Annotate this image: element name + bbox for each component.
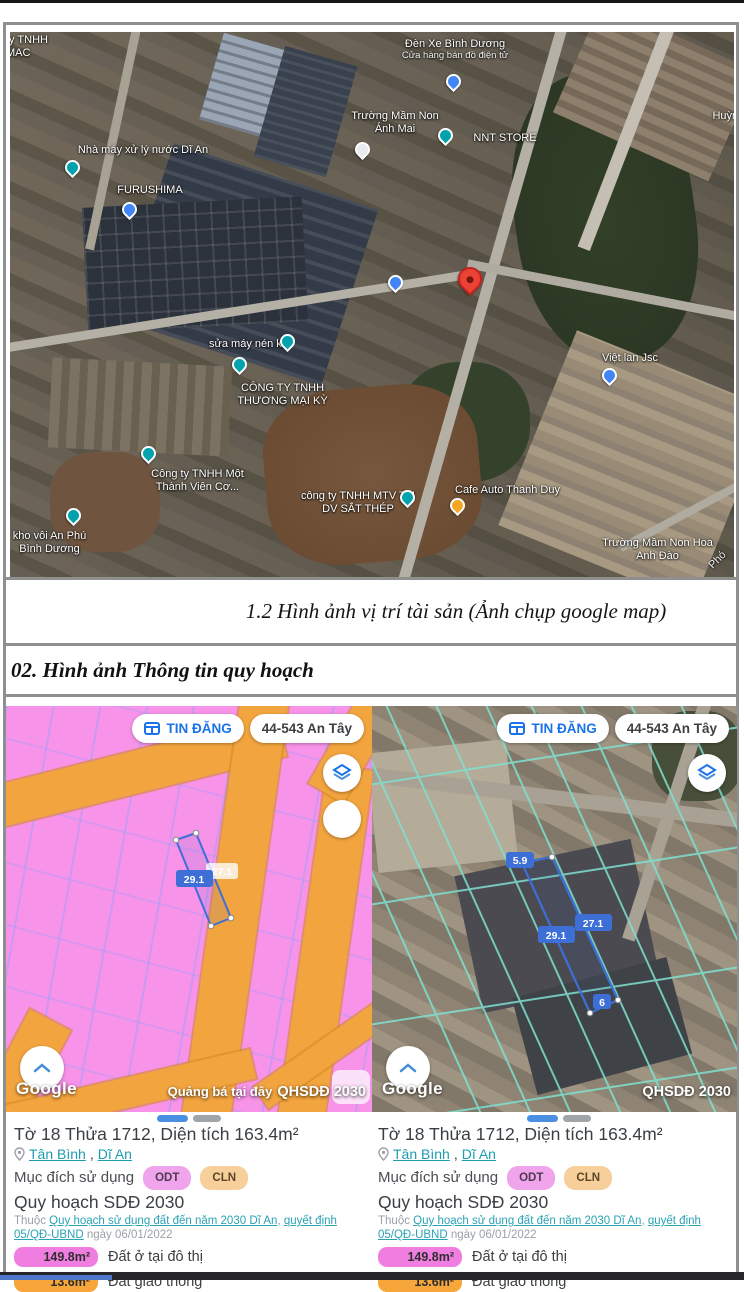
plan-prefix: Thuộc (378, 1215, 413, 1227)
address-label: 44-543 An Tây (627, 721, 717, 736)
map-label-den-xe-binh-duong: Đèn Xe Bình Dương Cửa hàng bán đồ điện t… (380, 38, 530, 62)
measurement-27: 27.1 (212, 866, 233, 878)
map-label-kho-voi-an-phu: kho vôi An Phú Bình Dương (10, 530, 97, 555)
parcel-title: Tờ 18 Thửa 1712, Diện tích 163.4m² (378, 1124, 734, 1144)
map-label-cong-ty-mot-thanh-vien: Công ty TNHH Một Thành Viên Cơ... (135, 468, 260, 493)
map-pin-plant-icon (62, 157, 83, 178)
chevron-up-icon (399, 1063, 417, 1073)
location-link-tan-binh[interactable]: Tân Bình (29, 1145, 86, 1163)
map-label-nnt-store: NNT STORE (460, 132, 550, 145)
layers-icon (332, 763, 352, 783)
parcel-outline-svg: 27.1 29.1 (6, 706, 372, 1112)
layers-icon (697, 763, 717, 783)
qhsdd-watermark: QHSDĐ 2030 (277, 1084, 366, 1100)
location-link-di-an[interactable]: Dĩ An (462, 1145, 496, 1163)
chevron-up-icon (33, 1063, 51, 1073)
location-pin-icon (14, 1147, 25, 1161)
map-texture-rooftops (48, 357, 232, 456)
listing-grid-icon (144, 722, 160, 735)
purpose-row: Mục đích sử dụng ODT CLN (378, 1166, 734, 1190)
planning-map-satellite[interactable]: 5.9 29.1 27.1 6 TIN ĐĂNG 44-543 An Tây (372, 706, 737, 1112)
parcel-vertex-dot (549, 854, 555, 860)
plan-detail: Thuộc Quy hoạch sử dụng đất đến năm 2030… (14, 1214, 370, 1242)
parcel-vertex-dot (587, 1010, 593, 1016)
tin-dang-button[interactable]: TIN ĐĂNG (132, 714, 243, 743)
figure-caption: 1.2 Hình ảnh vị trí tài sản (Ảnh chụp go… (246, 599, 667, 624)
map-label-cong-ty-thuong-mai-ky: CÔNG TY TNHH THƯƠNG MẠI KỲ (225, 382, 340, 407)
layers-button[interactable] (323, 754, 361, 792)
page-dot[interactable] (193, 1115, 221, 1122)
plan-date: ngày 06/01/2022 (448, 1229, 537, 1241)
map-label-viet-lan-jsc: Việt lan Jsc (585, 352, 675, 365)
area-label-residential: Đất ở tại đô thị (472, 1249, 567, 1265)
badge-odt: ODT (143, 1166, 191, 1190)
area-row-residential: 149.8m² Đất ở tại đô thị (378, 1247, 734, 1267)
planning-map-landuse[interactable]: 27.1 29.1 TIN ĐĂNG 44-543 An Tây Google (6, 706, 372, 1112)
measurement-6: 6 (599, 997, 605, 1009)
page-dot-active[interactable] (157, 1115, 188, 1122)
parcel-info-panel-left: Tờ 18 Thửa 1712, Diện tích 163.4m² Tân B… (14, 1124, 370, 1292)
page-top-edge (0, 0, 744, 3)
address-pill[interactable]: 44-543 An Tây (615, 714, 729, 743)
measurement-27-1: 27.1 (583, 918, 604, 930)
purpose-row: Mục đích sử dụng ODT CLN (14, 1166, 370, 1190)
tin-dang-label: TIN ĐĂNG (531, 721, 596, 736)
map-label-subtitle: Cửa hàng bán đồ điện tử (380, 51, 530, 62)
qhsdd-watermark: QHSDĐ 2030 (642, 1084, 731, 1100)
page-indicator-right[interactable] (527, 1115, 591, 1122)
tin-dang-label: TIN ĐĂNG (166, 721, 231, 736)
plan-date: ngày 06/01/2022 (84, 1229, 173, 1241)
location-pin-icon (378, 1147, 389, 1161)
location-separator: , (454, 1145, 458, 1163)
location-link-di-an[interactable]: Dĩ An (98, 1145, 132, 1163)
page-dot[interactable] (563, 1115, 591, 1122)
badge-cln: CLN (564, 1166, 612, 1190)
my-location-button[interactable] (323, 800, 361, 838)
badge-odt: ODT (507, 1166, 555, 1190)
map-pin-shop-icon (443, 71, 464, 92)
map-toolbar: TIN ĐĂNG 44-543 An Tây (132, 714, 364, 743)
purpose-label: Mục đích sử dụng (378, 1168, 498, 1188)
map-watermarks: QHSDĐ 2030 (642, 1084, 731, 1100)
map-label-ty-tnhh-mac: ty TNHH MAC (10, 34, 66, 59)
layers-button[interactable] (688, 754, 726, 792)
badge-cln: CLN (200, 1166, 248, 1190)
document-page: { "page": { "caption": "1.2 Hình ảnh vị … (0, 0, 744, 1280)
location-link-tan-binh[interactable]: Tân Bình (393, 1145, 450, 1163)
map-label-hoa-anh-dao: Trường Mầm Non Hoa Anh Đào (600, 537, 715, 562)
plan-title: Quy hoạch SDĐ 2030 (14, 1192, 370, 1213)
figure-caption-row: 1.2 Hình ảnh vị trí tài sản (Ảnh chụp go… (6, 580, 736, 643)
listing-grid-icon (509, 722, 525, 735)
address-pill[interactable]: 44-543 An Tây (250, 714, 364, 743)
area-badge-residential: 149.8m² (378, 1247, 462, 1267)
purpose-label: Mục đích sử dụng (14, 1168, 134, 1188)
section-title: 02. Hình ảnh Thông tin quy hoạch (6, 658, 314, 683)
map-label-furushima: FURUSHIMA (105, 184, 195, 197)
parcel-title: Tờ 18 Thửa 1712, Diện tích 163.4m² (14, 1124, 370, 1144)
tin-dang-button[interactable]: TIN ĐĂNG (497, 714, 608, 743)
parcel-vertex-dot (173, 837, 179, 843)
satellite-map-image: ty TNHH MAC Đèn Xe Bình Dương Cửa hàng b… (10, 32, 734, 577)
map-label-truong-mam-non-anh-mai: Trường Mầm Non Ánh Mai (340, 110, 450, 135)
map-label-huynh-hun: Huỳnh Hùn (710, 110, 734, 123)
frame-border-top (3, 22, 739, 25)
plan-detail: Thuộc Quy hoạch sử dụng đất đến năm 2030… (378, 1214, 734, 1242)
measurement-29: 29.1 (184, 874, 205, 886)
page-bottom-accent (0, 1275, 112, 1280)
parcel-vertex-dot (193, 830, 199, 836)
section-header-row: 02. Hình ảnh Thông tin quy hoạch (6, 646, 736, 694)
page-dot-active[interactable] (527, 1115, 558, 1122)
plan-title: Quy hoạch SDĐ 2030 (378, 1192, 734, 1213)
frame-divider-3 (3, 694, 739, 697)
parcel-overlay-svg: 5.9 29.1 27.1 6 (372, 706, 737, 1112)
address-label: 44-543 An Tây (262, 721, 352, 736)
measurement-29-1: 29.1 (546, 930, 567, 942)
location-separator: , (90, 1145, 94, 1163)
parcel-vertex-dot (228, 915, 234, 921)
map-label-nha-may-xu-ly-nuoc: Nhà máy xử lý nước Dĩ An (58, 144, 228, 157)
parcel-vertex-dot (208, 923, 214, 929)
area-row-residential: 149.8m² Đất ở tại đô thị (14, 1247, 370, 1267)
page-indicator-left[interactable] (157, 1115, 221, 1122)
parcel-vertex-dot (615, 997, 621, 1003)
map-label-cafe-auto-thanh-duy: Cafe Auto Thanh Duy (440, 484, 575, 497)
google-watermark: Google (16, 1079, 77, 1099)
map-label-title: Đèn Xe Bình Dương (405, 38, 505, 50)
map-toolbar: TIN ĐĂNG 44-543 An Tây (497, 714, 729, 743)
ad-watermark: Quảng bá tại đây (168, 1084, 273, 1099)
google-watermark: Google (382, 1079, 443, 1099)
plan-link-1[interactable]: Quy hoạch sử dụng đất đến năm 2030 Dĩ An (49, 1215, 277, 1227)
area-badge-residential: 149.8m² (14, 1247, 98, 1267)
map-watermarks: Quảng bá tại đây QHSDĐ 2030 (168, 1084, 366, 1100)
map-pin-school-icon (352, 139, 373, 160)
area-label-residential: Đất ở tại đô thị (108, 1249, 203, 1265)
plan-prefix: Thuộc (14, 1215, 49, 1227)
measurement-5-9: 5.9 (513, 855, 528, 867)
location-row: Tân Bình, Dĩ An (378, 1145, 734, 1163)
location-row: Tân Bình, Dĩ An (14, 1145, 370, 1163)
plan-link-1[interactable]: Quy hoạch sử dụng đất đến năm 2030 Dĩ An (413, 1215, 641, 1227)
parcel-info-panel-right: Tờ 18 Thửa 1712, Diện tích 163.4m² Tân B… (378, 1124, 734, 1292)
